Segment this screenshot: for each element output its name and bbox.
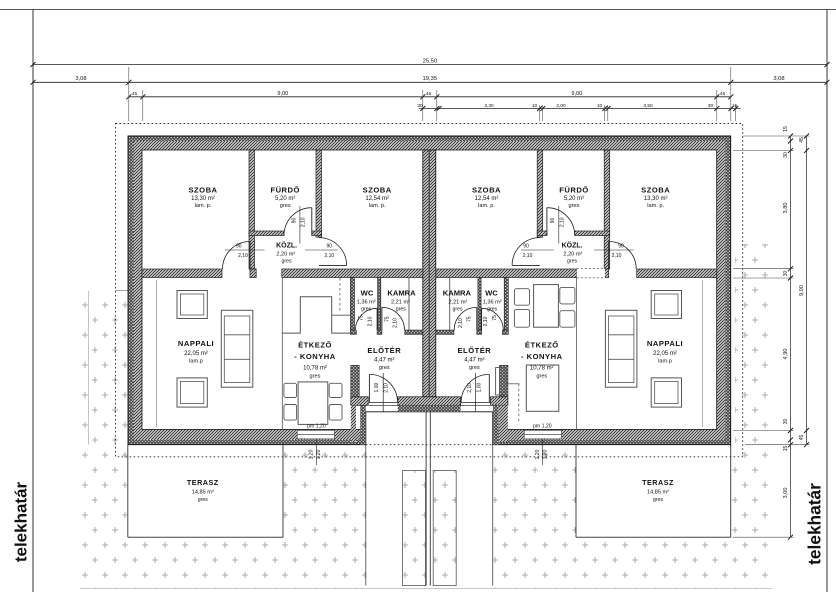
svg-text:3,80: 3,80 (783, 203, 789, 214)
svg-text:90: 90 (618, 244, 624, 250)
svg-text:pm 1,20: pm 1,20 (307, 424, 326, 430)
svg-text:pm 1,20: pm 1,20 (533, 424, 552, 430)
svg-text:1,20: 1,20 (542, 449, 548, 459)
svg-text:2,10: 2,10 (559, 217, 565, 227)
svg-text:75: 75 (384, 316, 390, 322)
svg-text:FÜRDŐ: FÜRDŐ (270, 186, 300, 195)
svg-text:13,30 m²: 13,30 m² (191, 196, 215, 202)
svg-text:30: 30 (783, 271, 789, 277)
svg-text:ÉTKEZŐ: ÉTKEZŐ (525, 341, 559, 350)
svg-text:telekhatár: telekhatár (12, 481, 31, 562)
svg-text:1,00: 1,00 (374, 383, 380, 393)
svg-text:14,85 m²: 14,85 m² (647, 490, 669, 496)
svg-text:gres: gres (198, 497, 208, 503)
svg-text:30: 30 (708, 103, 714, 109)
svg-text:KAMRA: KAMRA (387, 289, 416, 298)
svg-text:12,54 m²: 12,54 m² (365, 196, 389, 202)
svg-text:15: 15 (732, 103, 738, 109)
svg-text:22,05 m²: 22,05 m² (653, 351, 677, 357)
svg-text:gres: gres (361, 307, 371, 313)
svg-text:KÖZL.: KÖZL. (276, 241, 297, 250)
svg-text:lam.p: lam.p (658, 359, 672, 365)
svg-text:75: 75 (359, 315, 365, 321)
svg-text:1,00: 1,00 (477, 383, 483, 393)
svg-text:45: 45 (426, 91, 432, 97)
svg-text:gres: gres (379, 365, 390, 371)
svg-text:- KONYHA: - KONYHA (294, 352, 336, 361)
svg-text:gres: gres (487, 307, 497, 313)
svg-text:KAMRA: KAMRA (443, 289, 472, 298)
svg-text:FÜRDŐ: FÜRDŐ (559, 186, 589, 195)
svg-text:WC: WC (485, 289, 498, 298)
svg-text:75: 75 (492, 315, 498, 321)
svg-text:1,36 m²: 1,36 m² (483, 300, 502, 306)
svg-text:TERASZ: TERASZ (187, 478, 219, 487)
svg-text:3,00: 3,00 (783, 488, 789, 499)
svg-text:gres: gres (282, 259, 292, 265)
svg-text:WC: WC (361, 289, 374, 298)
svg-text:SZOBA: SZOBA (472, 186, 501, 195)
svg-text:30: 30 (417, 103, 423, 109)
svg-text:gres: gres (567, 259, 577, 265)
svg-text:10: 10 (597, 103, 603, 109)
svg-text:lam. p.: lam. p. (195, 203, 212, 209)
svg-text:90: 90 (327, 244, 333, 250)
svg-text:gres: gres (280, 203, 291, 209)
svg-text:10: 10 (532, 103, 538, 109)
svg-text:14,85 m²: 14,85 m² (192, 490, 214, 496)
svg-text:90: 90 (550, 218, 556, 224)
svg-text:ELŐTÉR: ELŐTÉR (457, 346, 491, 355)
svg-text:- KONYHA: - KONYHA (521, 352, 563, 361)
svg-text:10,78 m²: 10,78 m² (530, 366, 554, 372)
svg-text:30: 30 (783, 152, 789, 158)
svg-text:2,10: 2,10 (467, 383, 473, 393)
svg-text:ELŐTÉR: ELŐTÉR (367, 346, 401, 355)
svg-text:SZOBA: SZOBA (188, 186, 217, 195)
svg-text:2,10: 2,10 (612, 253, 622, 259)
svg-text:30: 30 (783, 419, 789, 425)
svg-text:NAPPALI: NAPPALI (647, 339, 683, 348)
svg-text:KÖZL.: KÖZL. (562, 241, 583, 250)
svg-text:NAPPALI: NAPPALI (178, 339, 214, 348)
svg-text:90: 90 (236, 244, 242, 250)
svg-text:lam.p: lam.p (189, 359, 203, 365)
svg-text:3,08: 3,08 (75, 76, 86, 82)
svg-text:2,00: 2,00 (556, 103, 566, 109)
svg-text:4,47 m²: 4,47 m² (464, 358, 484, 364)
svg-text:lam. p.: lam. p. (647, 203, 664, 209)
svg-text:1,20: 1,20 (316, 449, 322, 459)
svg-text:12,54 m²: 12,54 m² (475, 196, 499, 202)
svg-text:2,20 m²: 2,20 m² (276, 252, 295, 258)
svg-text:45: 45 (799, 137, 805, 143)
svg-text:2,20 m²: 2,20 m² (563, 252, 582, 258)
svg-text:25,50: 25,50 (423, 58, 438, 64)
svg-text:SZOBA: SZOBA (641, 186, 670, 195)
svg-text:45: 45 (132, 91, 138, 97)
svg-text:9,00: 9,00 (571, 91, 582, 97)
svg-text:90: 90 (523, 244, 529, 250)
svg-text:lam. p.: lam. p. (369, 203, 386, 209)
svg-text:2,21 m²: 2,21 m² (448, 300, 467, 306)
svg-text:2,10: 2,10 (483, 316, 489, 326)
svg-text:3,30: 3,30 (484, 103, 494, 109)
svg-text:45: 45 (799, 435, 805, 441)
svg-text:15: 15 (783, 446, 789, 452)
svg-text:5,20 m²: 5,20 m² (275, 196, 295, 202)
svg-text:SZOBA: SZOBA (363, 186, 392, 195)
svg-text:19,35: 19,35 (423, 76, 438, 82)
svg-text:75: 75 (466, 316, 472, 322)
svg-text:lam. p.: lam. p. (478, 203, 495, 209)
svg-text:gres: gres (653, 497, 663, 503)
svg-text:4,90: 4,90 (783, 349, 789, 360)
svg-text:15: 15 (783, 126, 789, 132)
svg-text:gres: gres (536, 374, 547, 380)
svg-text:gres: gres (396, 307, 406, 313)
svg-text:10,78 m²: 10,78 m² (303, 366, 327, 372)
svg-text:TERASZ: TERASZ (642, 478, 674, 487)
svg-text:13,30 m²: 13,30 m² (644, 196, 668, 202)
svg-text:2,10: 2,10 (324, 253, 334, 259)
svg-text:1,36 m²: 1,36 m² (357, 300, 376, 306)
svg-text:22,05 m²: 22,05 m² (184, 351, 208, 357)
svg-text:3,50: 3,50 (643, 103, 653, 109)
svg-text:90: 90 (292, 218, 298, 224)
svg-text:telekhatár: telekhatár (805, 483, 825, 565)
svg-text:2,10: 2,10 (384, 383, 390, 393)
svg-text:2,10: 2,10 (368, 316, 374, 326)
svg-text:2,10: 2,10 (238, 253, 248, 259)
svg-text:2,10: 2,10 (300, 217, 306, 227)
svg-text:1,20: 1,20 (535, 449, 541, 459)
svg-text:2,10: 2,10 (393, 318, 399, 328)
svg-text:9,00: 9,00 (799, 285, 805, 296)
svg-text:gres: gres (469, 365, 480, 371)
svg-text:9,00: 9,00 (277, 91, 288, 97)
svg-text:3,08: 3,08 (773, 76, 784, 82)
svg-text:ÉTKEZŐ: ÉTKEZŐ (298, 341, 332, 350)
svg-text:1,20: 1,20 (309, 449, 315, 459)
svg-text:2,10: 2,10 (458, 318, 464, 328)
svg-text:5,20 m²: 5,20 m² (564, 196, 584, 202)
svg-text:2,10: 2,10 (523, 253, 533, 259)
svg-text:gres: gres (310, 374, 321, 380)
svg-text:45: 45 (720, 91, 726, 97)
svg-text:gres: gres (569, 203, 580, 209)
svg-text:2,21 m²: 2,21 m² (391, 300, 410, 306)
svg-text:gres: gres (453, 307, 463, 313)
svg-text:4,47 m²: 4,47 m² (374, 358, 394, 364)
